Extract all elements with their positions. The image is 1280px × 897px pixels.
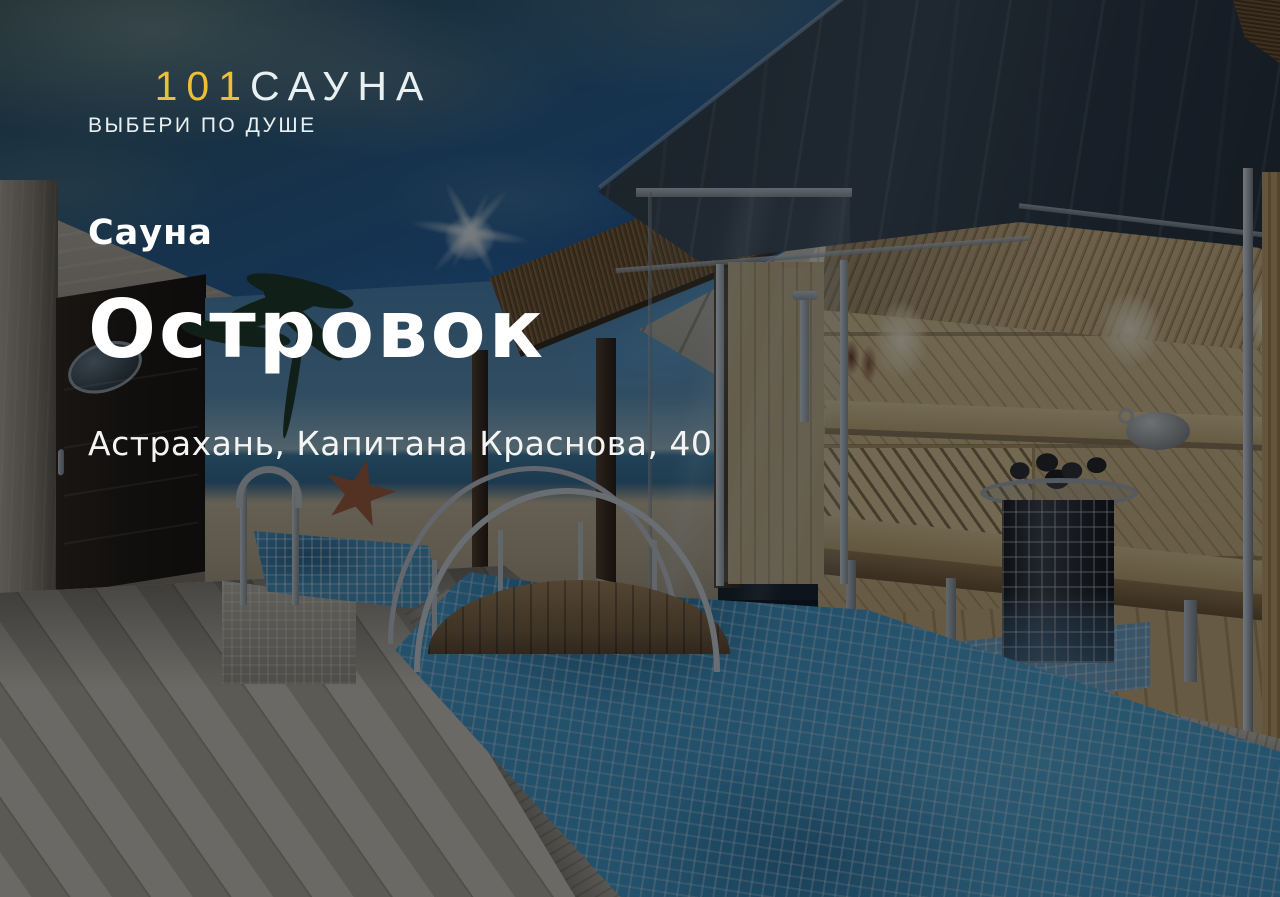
- sauna-title: Островок: [88, 290, 546, 370]
- sauna-cover-card: 101САУНА ВЫБЕРИ ПО ДУШЕ Сауна Островок А…: [0, 0, 1280, 897]
- logo-number: 101: [155, 63, 250, 109]
- logo-word: САУНА: [250, 64, 432, 109]
- brand-logo-wordmark: 101САУНА: [88, 64, 317, 109]
- address-text: Астрахань, Капитана Краснова, 40: [88, 424, 712, 463]
- brand-logo: 101САУНА ВЫБЕРИ ПО ДУШЕ: [88, 64, 317, 138]
- brand-tagline: ВЫБЕРИ ПО ДУШЕ: [88, 114, 317, 138]
- cover-text-layer: 101САУНА ВЫБЕРИ ПО ДУШЕ Сауна Островок А…: [0, 0, 1280, 897]
- category-label: Сауна: [88, 213, 213, 253]
